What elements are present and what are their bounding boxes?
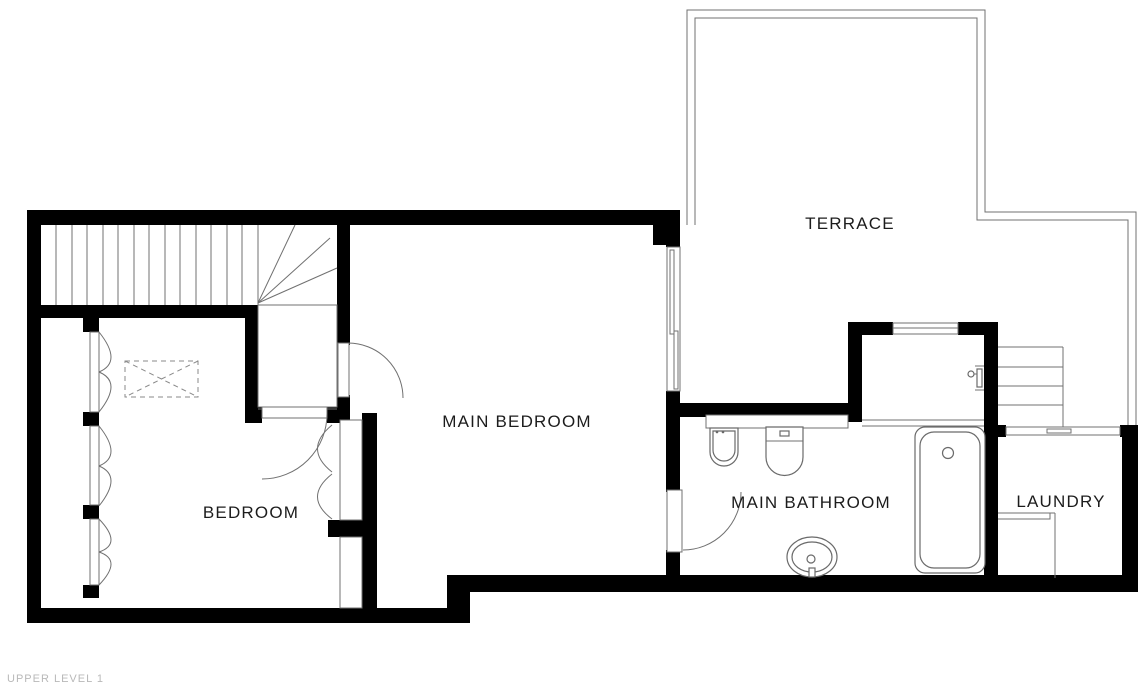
stair-landing: [258, 305, 337, 409]
closet-double-doors: [318, 425, 333, 519]
sliding-window-laundry: [1006, 427, 1120, 435]
bathtub: [915, 427, 985, 573]
floorplan-canvas: TERRACE MAIN BEDROOM BEDROOM MAIN BATHRO…: [0, 0, 1141, 696]
wall-wardrobe-4: [83, 585, 99, 598]
terrace-railing: [687, 10, 1136, 427]
wall-mainbedroom-west-lower: [362, 413, 377, 620]
wall-bottom-bedroom: [27, 608, 470, 623]
wardrobe-bifold-doors: [90, 332, 111, 585]
wall-wardrobe-3: [83, 505, 99, 519]
level-label: UPPER LEVEL 1: [7, 673, 104, 685]
room-label-main-bathroom: MAIN BATHROOM: [731, 493, 891, 512]
floorplan-drawing: TERRACE MAIN BEDROOM BEDROOM MAIN BATHRO…: [0, 0, 1141, 696]
room-label-laundry: LAUNDRY: [1016, 492, 1105, 511]
wall-bottom-right: [447, 575, 1138, 592]
door-bathroom: [667, 490, 741, 552]
shower-screen: [862, 420, 984, 426]
window-shower: [893, 323, 958, 334]
wall-east-upper: [666, 225, 680, 247]
wall-top: [27, 210, 680, 225]
wall-east-lower: [666, 550, 680, 592]
room-label-bedroom: BEDROOM: [203, 503, 299, 522]
shower-mixer: [968, 366, 984, 390]
wall-landing-west: [245, 305, 258, 420]
wall-east-bathroom-laundry: [984, 322, 998, 592]
skylight-dashed: [125, 361, 198, 397]
toilet: [766, 427, 803, 476]
wall-shower-top-left: [848, 322, 893, 335]
wall-laundry-east: [1122, 425, 1138, 592]
laundry-counter: [998, 513, 1055, 578]
wall-left: [27, 210, 41, 623]
wall-laundry-top-left: [984, 425, 1006, 437]
door-bedroom: [262, 407, 327, 479]
wall-shower-west: [848, 322, 862, 422]
room-label-terrace: TERRACE: [805, 214, 895, 233]
staircase-exterior: [998, 347, 1063, 427]
closet: [340, 420, 362, 608]
sliding-door-terrace: [667, 247, 680, 391]
door-main-bedroom: [338, 343, 403, 398]
wall-east-mid: [666, 391, 680, 492]
winder-steps: [258, 225, 337, 303]
bathroom-counter: [706, 415, 848, 428]
wall-wardrobe-1: [83, 318, 99, 332]
wall-stairs-bottom: [27, 305, 258, 318]
room-label-main-bedroom: MAIN BEDROOM: [442, 412, 591, 431]
bidet: [710, 428, 738, 466]
wall-mainbedroom-west-upper: [337, 225, 350, 345]
wall-wardrobe-2: [83, 412, 99, 426]
sink: [787, 537, 837, 577]
